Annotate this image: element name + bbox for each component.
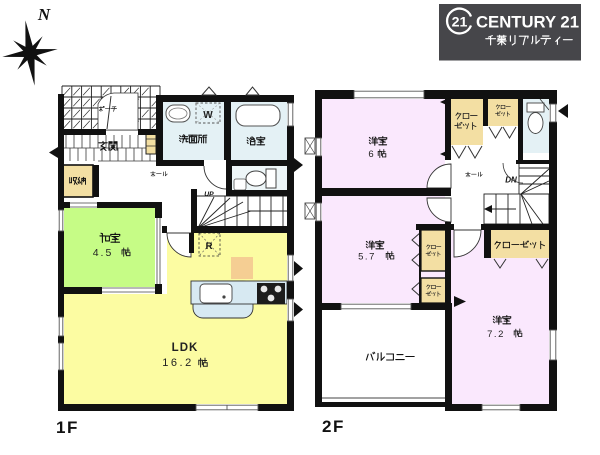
svg-text:DN: DN bbox=[505, 176, 517, 185]
svg-text:6: 6 bbox=[368, 149, 373, 160]
svg-text:CENTURY 21: CENTURY 21 bbox=[476, 14, 579, 32]
svg-text:R: R bbox=[206, 241, 213, 252]
svg-text:LDK: LDK bbox=[172, 342, 199, 354]
svg-text:7.2: 7.2 bbox=[487, 329, 505, 340]
svg-text:21: 21 bbox=[452, 15, 468, 31]
svg-text:16.2: 16.2 bbox=[162, 357, 193, 369]
svg-text:4.5: 4.5 bbox=[93, 247, 114, 259]
svg-text:UP: UP bbox=[204, 191, 214, 198]
svg-text:1F: 1F bbox=[56, 418, 79, 437]
svg-text:N: N bbox=[37, 5, 51, 24]
svg-text:W: W bbox=[203, 110, 213, 121]
svg-text:2F: 2F bbox=[322, 417, 345, 436]
svg-text:5.7: 5.7 bbox=[358, 252, 376, 263]
